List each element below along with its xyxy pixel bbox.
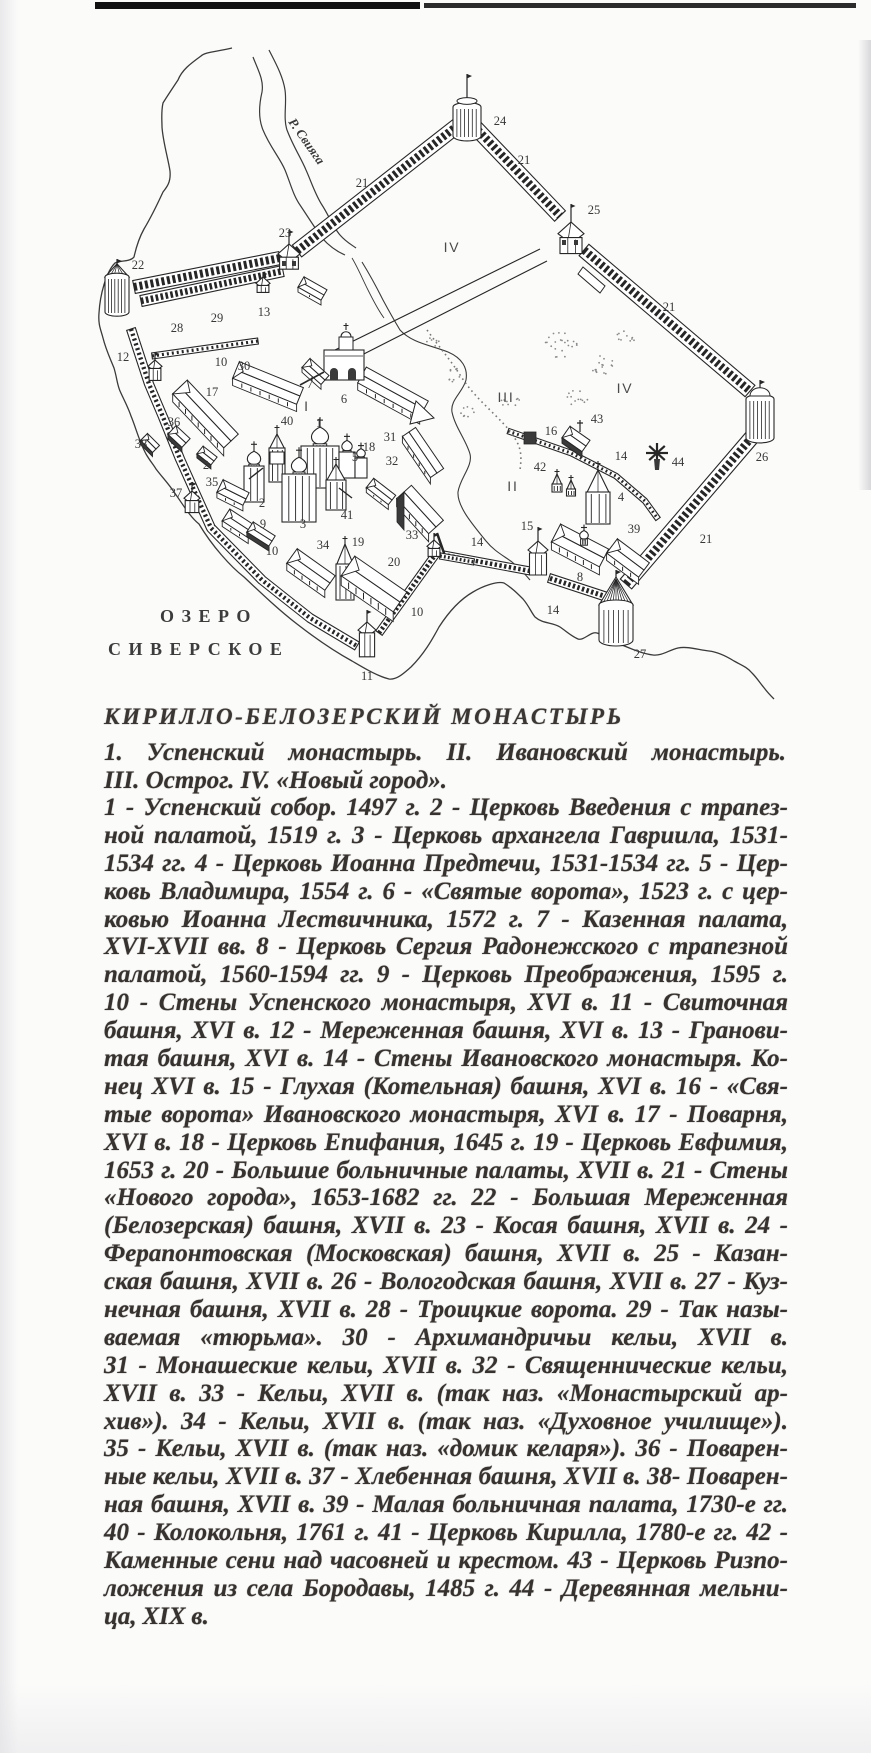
svg-text:10: 10 bbox=[411, 605, 424, 619]
svg-text:14: 14 bbox=[471, 535, 484, 549]
svg-text:10: 10 bbox=[215, 355, 228, 369]
svg-text:12: 12 bbox=[117, 350, 130, 364]
svg-text:23: 23 bbox=[279, 226, 292, 240]
svg-text:22: 22 bbox=[132, 258, 145, 272]
svg-text:II: II bbox=[507, 478, 518, 494]
svg-text:2: 2 bbox=[259, 496, 265, 510]
svg-text:44: 44 bbox=[672, 455, 685, 469]
svg-text:21: 21 bbox=[700, 532, 713, 546]
svg-text:20: 20 bbox=[388, 555, 401, 569]
svg-text:25: 25 bbox=[588, 203, 601, 217]
svg-text:42: 42 bbox=[534, 460, 547, 474]
svg-text:39: 39 bbox=[628, 522, 641, 536]
svg-text:27: 27 bbox=[634, 647, 647, 661]
svg-text:21: 21 bbox=[356, 176, 369, 190]
svg-text:16: 16 bbox=[545, 424, 558, 438]
svg-text:33: 33 bbox=[406, 528, 419, 542]
svg-text:11: 11 bbox=[361, 669, 373, 683]
svg-text:15: 15 bbox=[521, 519, 534, 533]
svg-text:37: 37 bbox=[170, 486, 183, 500]
svg-text:41: 41 bbox=[341, 508, 354, 522]
svg-text:IV: IV bbox=[444, 239, 461, 255]
svg-text:19: 19 bbox=[352, 535, 365, 549]
svg-text:38: 38 bbox=[135, 437, 148, 451]
svg-text:36: 36 bbox=[168, 415, 181, 429]
svg-text:I: I bbox=[304, 398, 310, 414]
svg-text:14: 14 bbox=[547, 603, 560, 617]
svg-text:3: 3 bbox=[300, 517, 306, 531]
svg-text:13: 13 bbox=[258, 305, 271, 319]
svg-text:III: III bbox=[497, 389, 514, 405]
svg-text:26: 26 bbox=[756, 450, 769, 464]
svg-text:21: 21 bbox=[663, 300, 676, 314]
svg-text:34: 34 bbox=[317, 538, 330, 552]
svg-text:2: 2 bbox=[203, 458, 209, 472]
svg-text:32: 32 bbox=[386, 454, 399, 468]
svg-text:24: 24 bbox=[494, 114, 507, 128]
svg-text:4: 4 bbox=[618, 490, 625, 504]
svg-text:28: 28 bbox=[171, 321, 184, 335]
svg-text:6: 6 bbox=[341, 392, 347, 406]
svg-text:35: 35 bbox=[206, 475, 219, 489]
svg-text:30: 30 bbox=[238, 359, 251, 373]
svg-text:40: 40 bbox=[281, 414, 294, 428]
svg-text:IV: IV bbox=[617, 380, 634, 396]
svg-text:31: 31 bbox=[384, 430, 397, 444]
svg-text:17: 17 bbox=[206, 385, 219, 399]
svg-text:7: 7 bbox=[307, 377, 313, 391]
svg-text:43: 43 bbox=[591, 412, 604, 426]
svg-text:9: 9 bbox=[260, 517, 266, 531]
svg-text:8: 8 bbox=[577, 570, 583, 584]
svg-text:14: 14 bbox=[615, 449, 628, 463]
svg-text:18: 18 bbox=[363, 440, 376, 454]
svg-text:10: 10 bbox=[266, 544, 279, 558]
svg-text:21: 21 bbox=[518, 153, 531, 167]
svg-text:5: 5 bbox=[352, 450, 358, 464]
svg-text:29: 29 bbox=[211, 311, 224, 325]
svg-text:1: 1 bbox=[316, 416, 322, 430]
